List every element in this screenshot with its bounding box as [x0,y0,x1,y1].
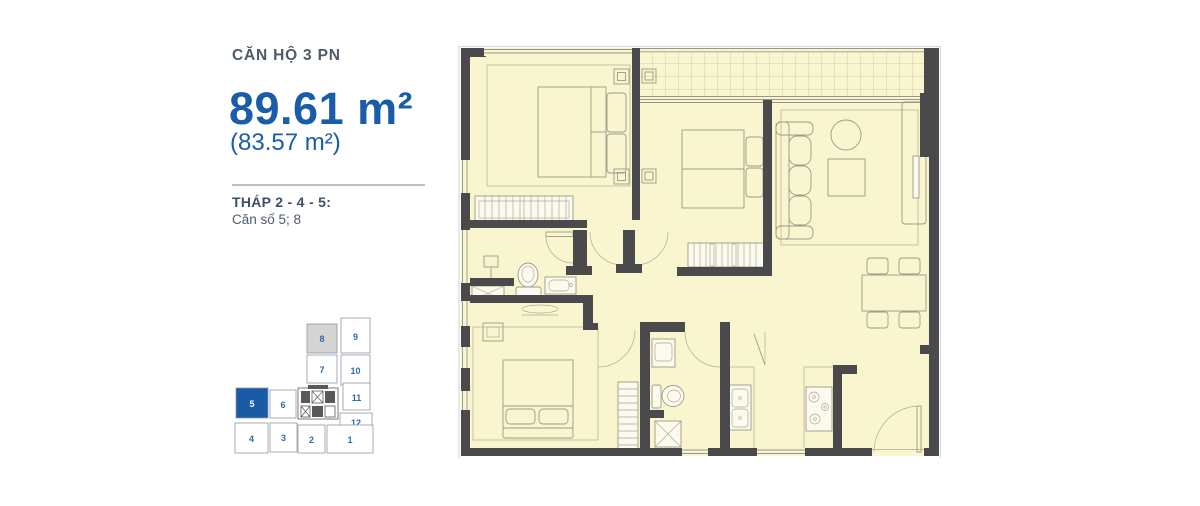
area-secondary: (83.57 m²) [230,131,341,155]
keyplan-core-icon [298,385,338,419]
bathroom2-toilet-icon [652,385,684,408]
keyplan-unit-3: 3 [270,423,297,452]
svg-text:3: 3 [281,433,286,443]
keyplan-unit-7: 7 [307,355,337,383]
svg-text:6: 6 [280,400,285,410]
keyplan-unit-5-highlighted: 5 [236,388,268,418]
unit-type-title: CĂN HỘ 3 PN [232,47,341,65]
keyplan-unit-2: 2 [298,425,325,453]
svg-text:9: 9 [353,332,358,342]
kitchen-stove-icon [806,387,832,431]
balcony [640,49,924,103]
unit-number-label: Căn số 5; 8 [232,212,301,227]
bedroom3-shelf-icon [618,382,638,452]
area-main: 89.61 m² [229,86,413,131]
bedroom2-wardrobe-icon [688,243,765,267]
svg-text:8: 8 [319,334,324,344]
floor-plan [458,38,943,458]
keyplan-unit-8: 8 [307,324,337,353]
svg-text:4: 4 [249,434,254,444]
washing-machine-icon [655,421,681,447]
bathroom1-sink-icon [545,277,576,294]
keyplan-unit-4: 4 [235,423,268,453]
kitchen-sink-icon [729,385,751,430]
page: CĂN HỘ 3 PN 89.61 m² (83.57 m²) THÁP 2 -… [0,0,1200,506]
key-plan: 8 9 7 10 5 6 11 12 [228,312,378,462]
divider-line [232,184,425,186]
keyplan-unit-9: 9 [341,318,370,353]
svg-text:7: 7 [319,365,324,375]
bedroom1-wardrobe-icon [475,196,573,222]
keyplan-unit-11: 11 [343,383,370,410]
svg-text:1: 1 [347,435,352,445]
svg-text:2: 2 [309,435,314,445]
svg-text:5: 5 [249,399,254,409]
keyplan-unit-10: 10 [341,355,370,385]
svg-text:10: 10 [350,366,360,376]
svg-text:11: 11 [352,393,362,403]
bathroom2-sink-icon [652,339,675,367]
keyplan-unit-6: 6 [270,390,296,418]
tower-label: THÁP 2 - 4 - 5: [232,194,331,210]
keyplan-unit-1: 1 [327,425,373,453]
